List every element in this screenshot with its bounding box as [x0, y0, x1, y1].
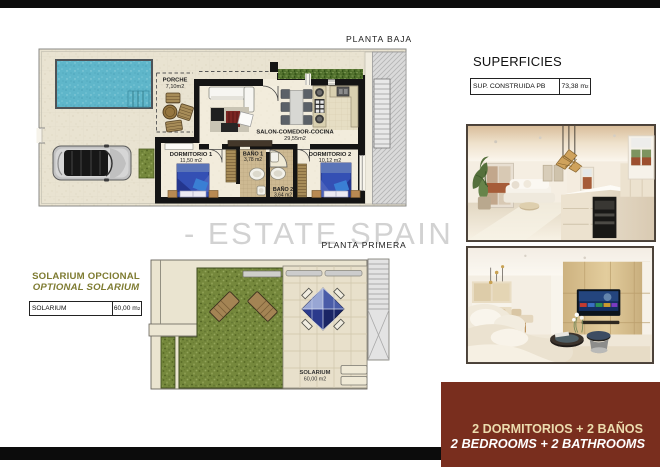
- svg-text:60,00 m2: 60,00 m2: [304, 377, 326, 383]
- svg-text:SALON-COMEDOR-COCINA: SALON-COMEDOR-COCINA: [256, 130, 334, 136]
- svg-text:PORCHE: PORCHE: [163, 78, 188, 84]
- svg-text:11,50 m2: 11,50 m2: [180, 158, 202, 164]
- svg-text:SOLARIUM: SOLARIUM: [300, 370, 331, 376]
- svg-text:3,64 m2: 3,64 m2: [274, 193, 292, 199]
- svg-text:29,55m2: 29,55m2: [284, 136, 306, 142]
- svg-text:7,10m2: 7,10m2: [166, 84, 185, 90]
- svg-text:3,78 m2: 3,78 m2: [244, 157, 262, 163]
